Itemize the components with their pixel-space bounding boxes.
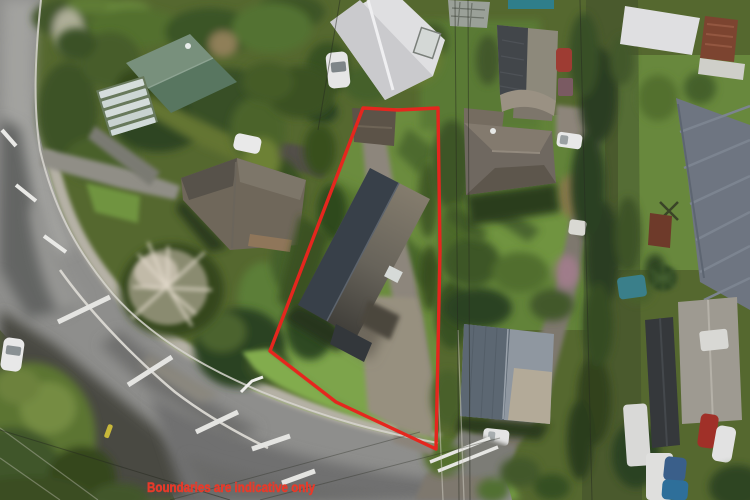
svg-text:Boundaries are indicative only: Boundaries are indicative only (147, 480, 315, 495)
